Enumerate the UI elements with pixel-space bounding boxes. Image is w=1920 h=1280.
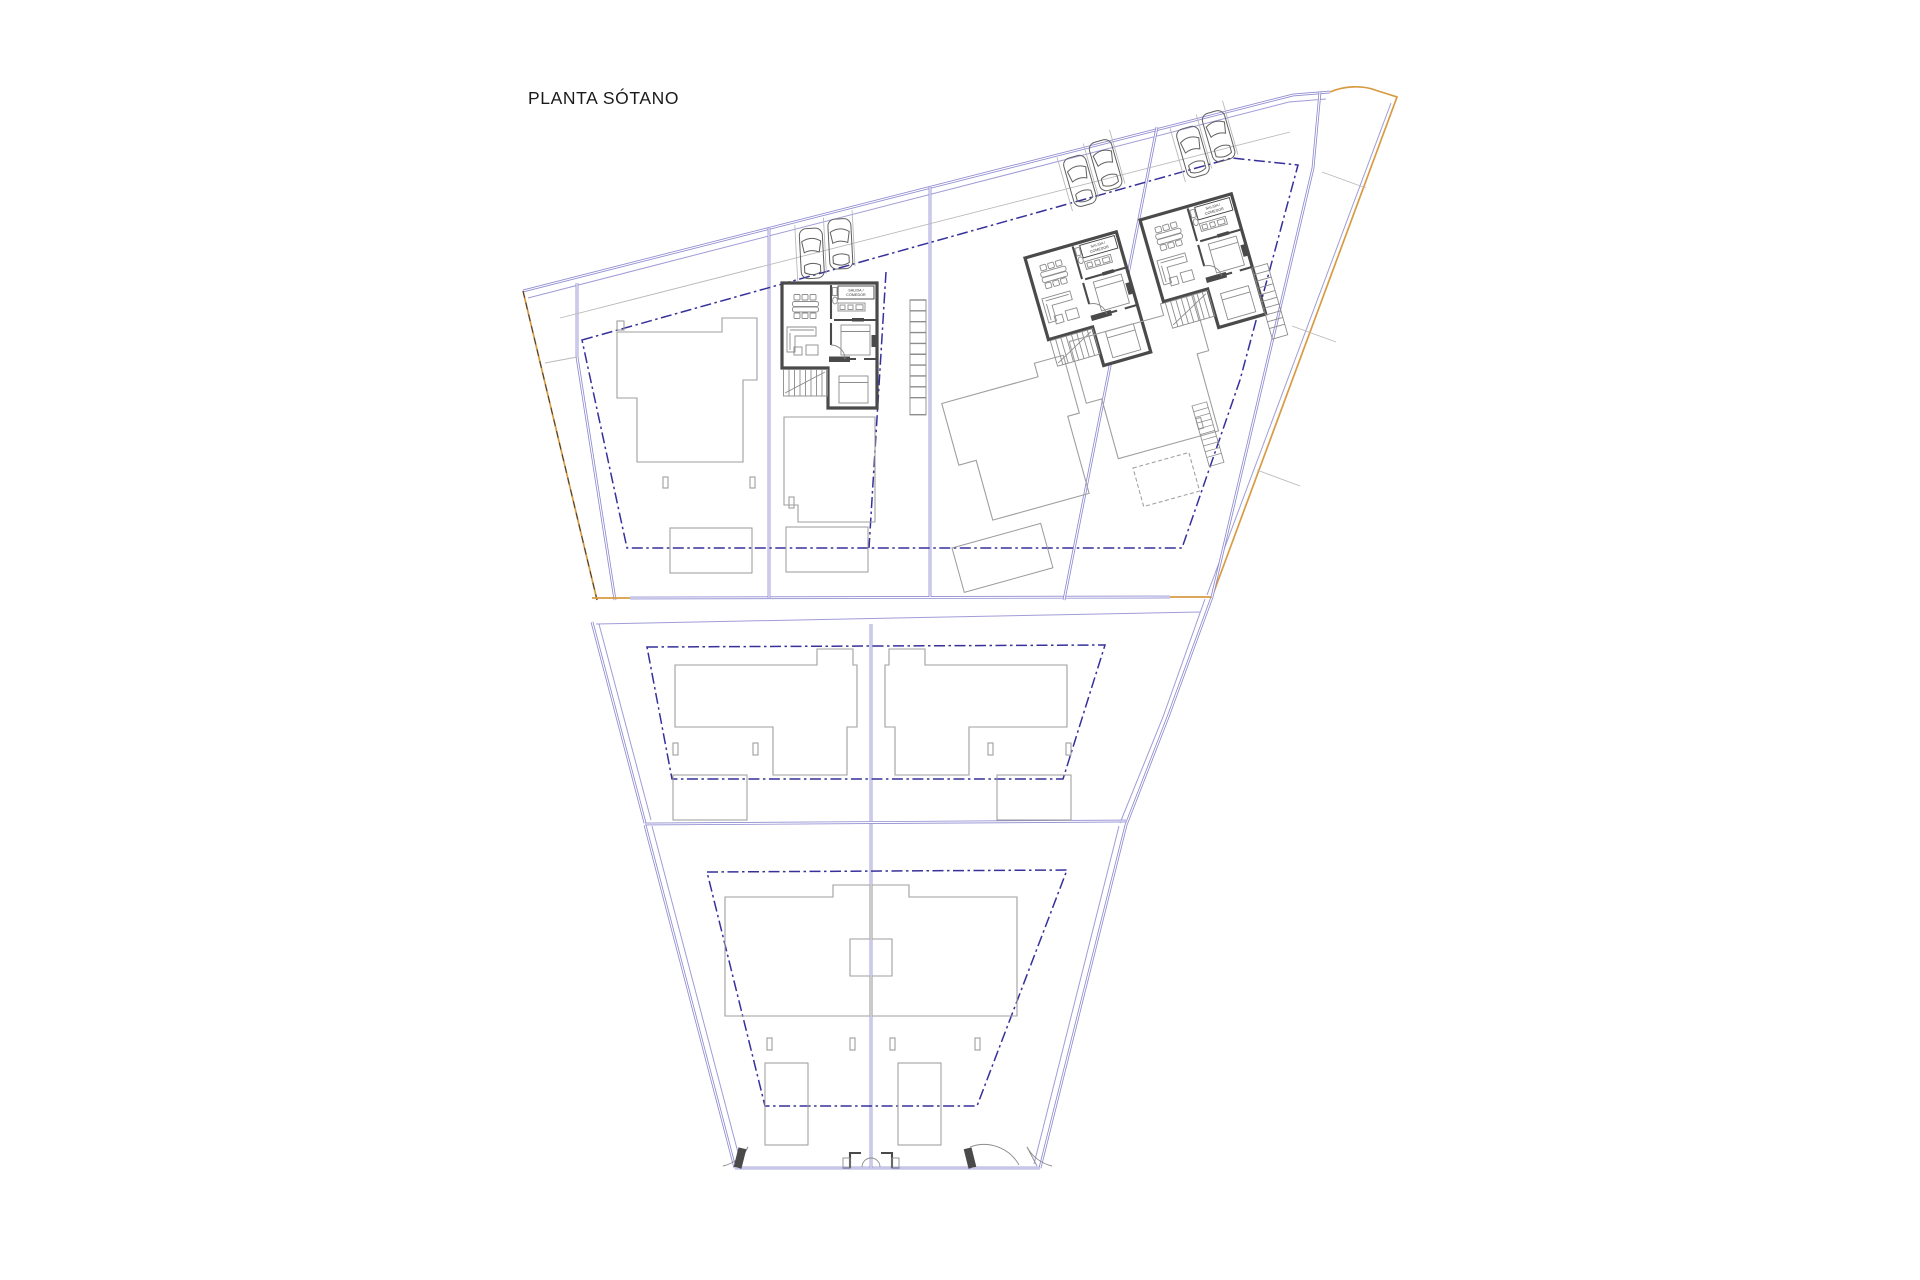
middle-house-left [673, 649, 857, 820]
gate-left [723, 1147, 748, 1169]
parcel-1 [617, 318, 757, 573]
floor-plan-canvas: SALIDA / COMEDOR [0, 0, 1920, 1280]
car-pair [1054, 130, 1128, 211]
drawing-sheet: PLANTA SÓTANO SALIDA / COMEDOR [0, 0, 1920, 1280]
section-bottom [723, 885, 1052, 1169]
site-boundary [523, 87, 1397, 1168]
car-pair [1167, 101, 1241, 182]
parcel-3 [938, 130, 1151, 593]
section-top [560, 101, 1366, 593]
gate-right [964, 1144, 1052, 1168]
unit-plan-3 [1140, 194, 1266, 340]
middle-house-right [885, 649, 1071, 820]
setback-lines [582, 158, 1298, 1106]
unit-plan-1 [782, 283, 877, 408]
